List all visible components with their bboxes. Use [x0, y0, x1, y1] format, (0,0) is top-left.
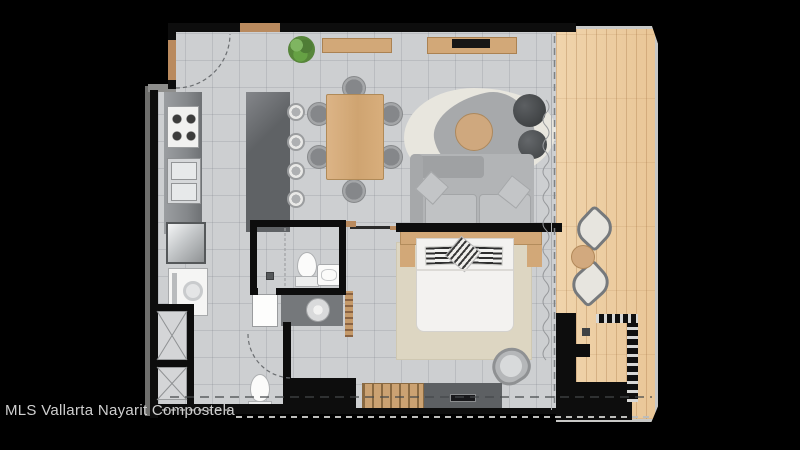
bath-wall-bottom: [276, 288, 346, 295]
top-wall-door: [240, 23, 280, 32]
bar-stool: [287, 162, 305, 180]
nightstand: [400, 245, 415, 267]
toilet-tank: [295, 276, 319, 287]
potted-plant: [288, 36, 315, 63]
bedroom-wall: [396, 223, 562, 232]
louver-screen: [627, 323, 638, 402]
top-wall: [176, 23, 576, 32]
washer-door: [183, 281, 203, 301]
floorplan-image: MLS Vallarta Nayarit Compostela: [0, 0, 800, 450]
terrace-side-table: [571, 245, 595, 269]
bedroom-tv: [450, 394, 476, 402]
bar-stool: [287, 133, 305, 151]
bathroom-door: [252, 294, 278, 327]
kitchen-island: [246, 92, 290, 232]
terrace-wall: [556, 313, 576, 385]
chair-cushion: [496, 351, 526, 381]
accent-pillow: [445, 236, 482, 273]
pouf: [513, 94, 546, 127]
watermark-text: MLS Vallarta Nayarit Compostela: [5, 402, 235, 419]
terrace-wall: [574, 344, 590, 357]
vessel-sink: [306, 298, 330, 322]
closet-wall: [187, 366, 194, 404]
dining-table: [326, 94, 384, 180]
shower-drain: [266, 272, 274, 280]
glass-line: [551, 34, 552, 410]
double-sink: [167, 158, 201, 204]
stove-cooktop: [167, 106, 199, 148]
sink-basin: [171, 162, 197, 180]
duvet-fold: [417, 269, 513, 271]
sink-basin: [171, 183, 197, 201]
coffee-table: [455, 113, 493, 151]
washbasin: [317, 264, 341, 286]
bath-wall-top: [250, 220, 346, 227]
terrace-wall: [556, 382, 632, 420]
left-wall: [150, 90, 158, 418]
closet-wall: [187, 304, 194, 366]
lintel: [346, 221, 356, 227]
bar-stool: [287, 103, 305, 121]
slat-partition: [345, 291, 353, 337]
terrace-spot: [582, 328, 590, 336]
bath-wall-stub: [250, 288, 258, 295]
toilet-bowl: [250, 374, 270, 402]
double-bed: [416, 238, 514, 332]
bar-stool: [287, 190, 305, 208]
refrigerator: [166, 222, 206, 264]
bath-wall-left: [250, 220, 257, 295]
louver-screen: [596, 314, 638, 323]
bath-wall-right: [339, 220, 346, 295]
closet: [157, 311, 187, 360]
hall-wall: [283, 322, 291, 382]
sideboard: [322, 38, 392, 53]
lintel: [390, 226, 396, 230]
tv: [452, 39, 490, 48]
closet: [157, 367, 187, 400]
sofa: [410, 154, 534, 228]
toilet-bowl: [297, 252, 317, 278]
basin-line: [321, 269, 337, 281]
toilet: [295, 252, 319, 288]
entry-door: [168, 40, 176, 80]
hall-block: [283, 378, 356, 413]
dining-chair: [342, 179, 366, 203]
nightstand: [527, 245, 542, 267]
